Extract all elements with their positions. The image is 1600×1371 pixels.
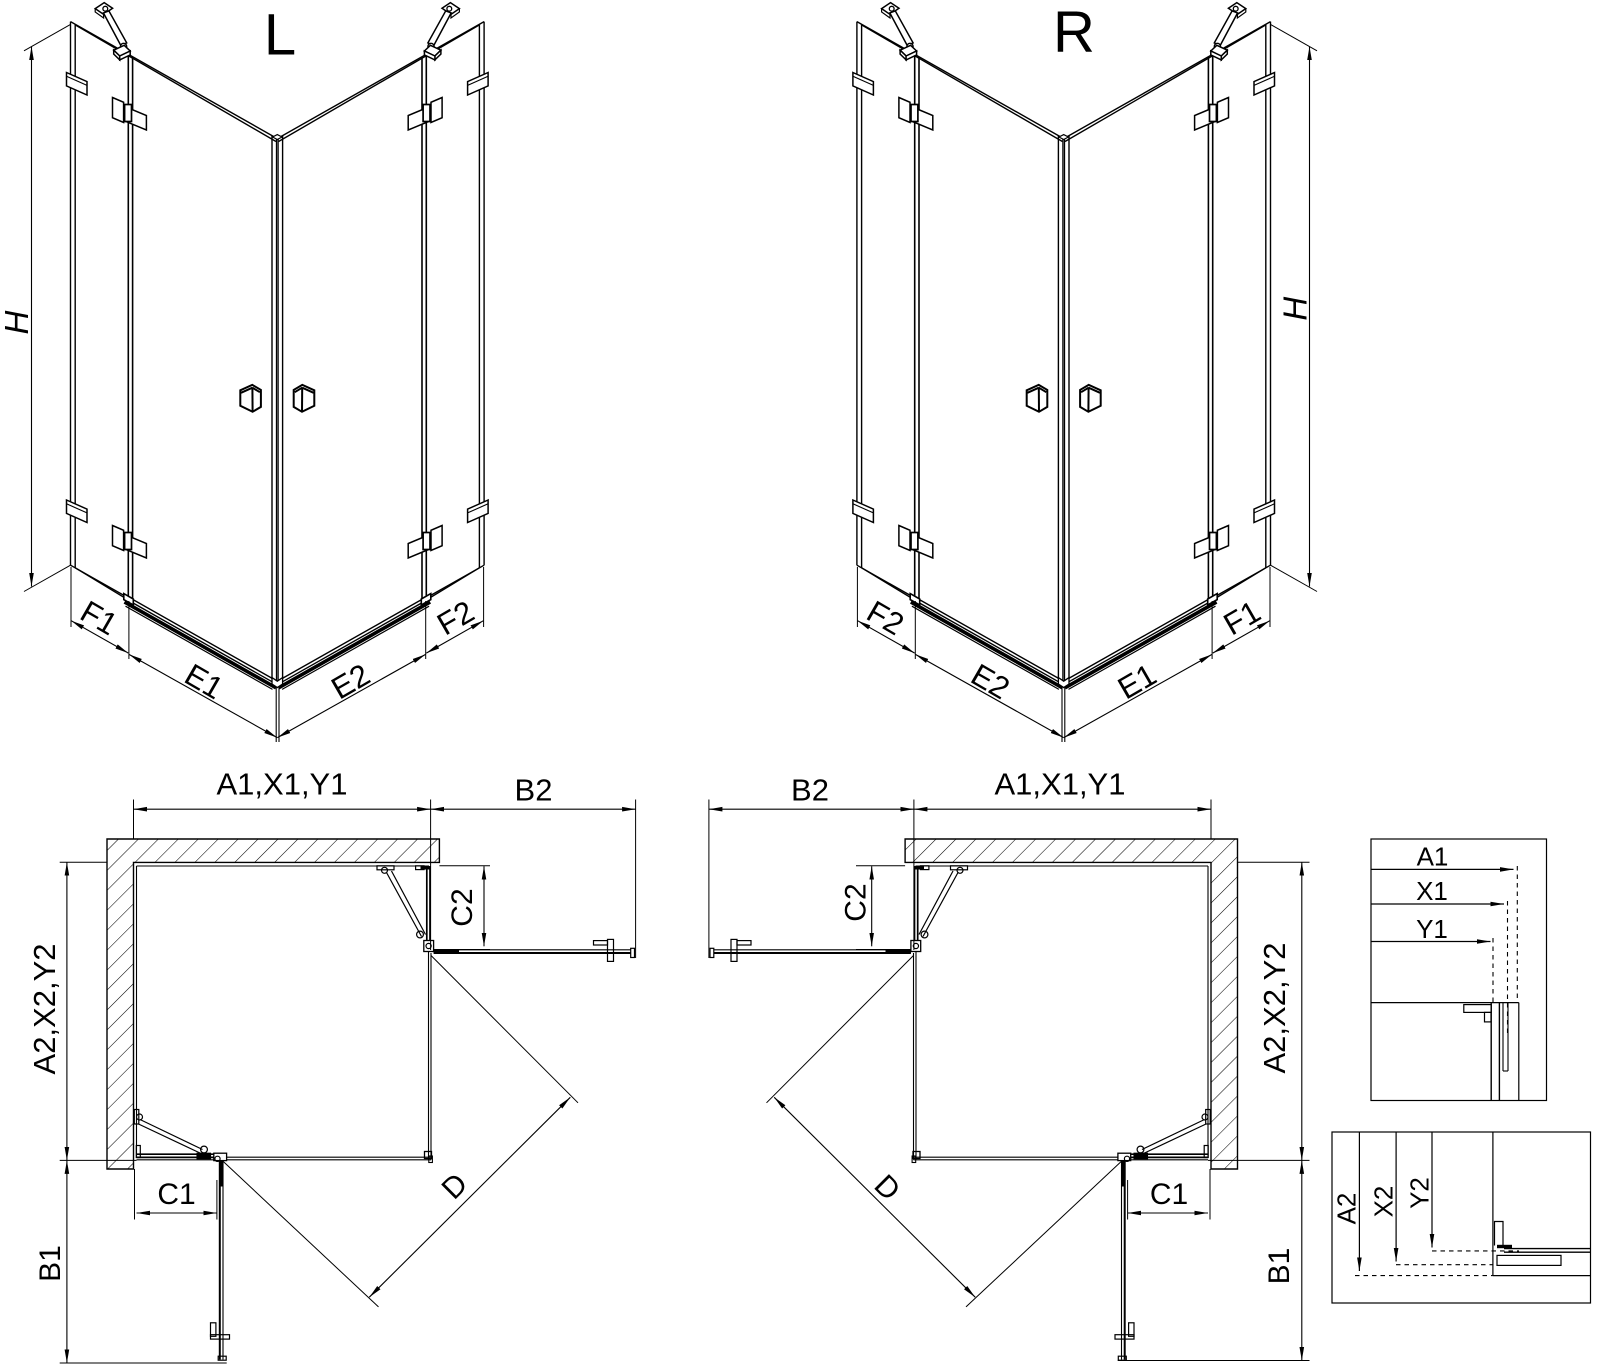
svg-text:C2: C2 (840, 883, 873, 921)
svg-text:Y1: Y1 (1416, 914, 1448, 944)
svg-text:B2: B2 (515, 773, 553, 808)
svg-text:C2: C2 (446, 888, 479, 926)
svg-text:A2,X2,Y2: A2,X2,Y2 (27, 944, 62, 1075)
svg-text:H: H (1277, 297, 1314, 321)
svg-text:X1: X1 (1416, 876, 1448, 906)
svg-text:L: L (264, 3, 296, 68)
svg-text:A1,X1,Y1: A1,X1,Y1 (217, 767, 348, 802)
svg-text:A1,X1,Y1: A1,X1,Y1 (995, 767, 1126, 802)
svg-text:B2: B2 (791, 773, 829, 808)
svg-text:B1: B1 (34, 1245, 67, 1282)
svg-text:X2: X2 (1369, 1186, 1399, 1218)
svg-text:A1: A1 (1417, 842, 1449, 872)
svg-text:H: H (0, 311, 35, 335)
svg-text:A2,X2,Y2: A2,X2,Y2 (1257, 943, 1292, 1074)
svg-text:C1: C1 (157, 1178, 195, 1211)
svg-text:C1: C1 (1150, 1178, 1188, 1211)
svg-text:A2: A2 (1332, 1193, 1362, 1225)
svg-text:B1: B1 (1263, 1248, 1296, 1285)
svg-text:Y2: Y2 (1405, 1177, 1435, 1209)
svg-text:R: R (1053, 0, 1095, 65)
